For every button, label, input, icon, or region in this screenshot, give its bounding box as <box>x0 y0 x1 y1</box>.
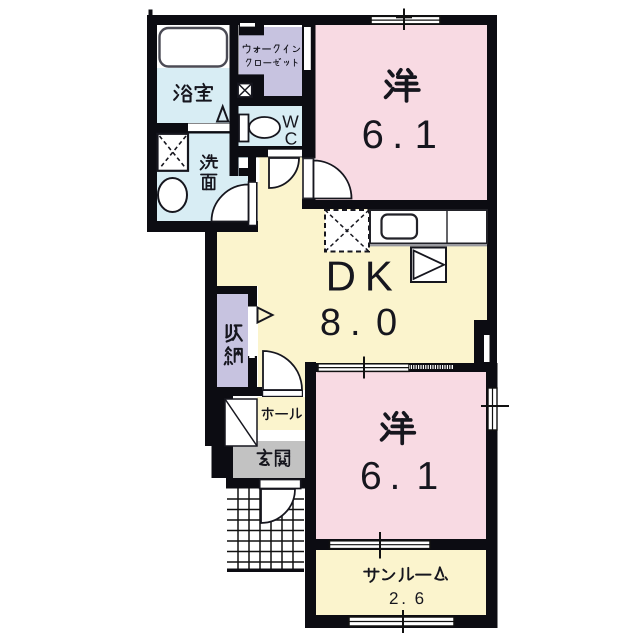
svg-text:6: 6 <box>415 589 424 608</box>
svg-text:D: D <box>326 252 356 299</box>
svg-text:.: . <box>350 302 361 344</box>
svg-text:2: 2 <box>389 589 398 608</box>
svg-text:1: 1 <box>415 113 437 157</box>
svg-text:.: . <box>389 455 400 498</box>
svg-text:6: 6 <box>362 113 384 157</box>
svg-text:C: C <box>285 129 298 149</box>
svg-text:6: 6 <box>360 455 382 498</box>
svg-text:8: 8 <box>320 302 341 344</box>
svg-text:.: . <box>401 589 406 608</box>
svg-text:0: 0 <box>376 302 397 344</box>
svg-text:K: K <box>365 252 393 299</box>
svg-text:1: 1 <box>417 455 439 498</box>
svg-text:.: . <box>392 113 403 157</box>
